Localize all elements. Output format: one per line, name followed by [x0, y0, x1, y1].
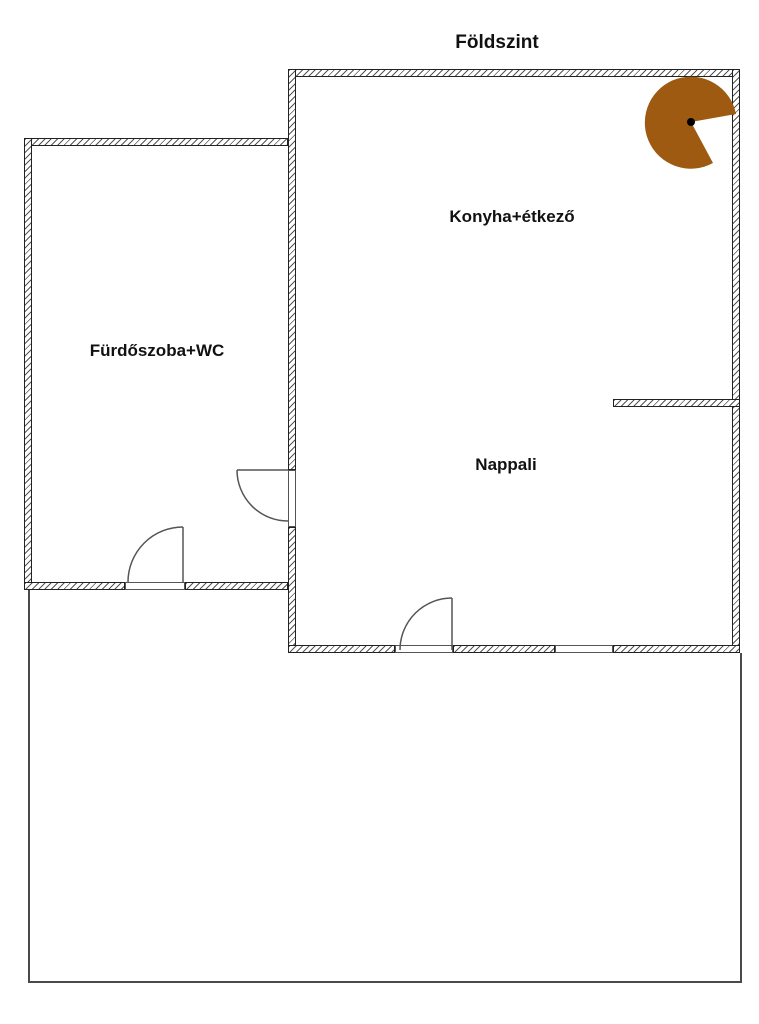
- door-bathroom-living: [237, 470, 288, 521]
- spiral-staircase-center-dot: [687, 118, 695, 126]
- wall-kitchen-top: [288, 69, 740, 77]
- wall-living-bottom-left: [288, 645, 395, 653]
- wall-kitchen-right: [732, 69, 740, 653]
- terrace-outline-bottom: [28, 981, 742, 983]
- door-opening-living-terrace: [395, 645, 453, 653]
- wall-kitchen-left-lower: [288, 527, 296, 653]
- wall-living-bottom-middle: [453, 645, 555, 653]
- wall-bathroom-bottom-left: [24, 582, 125, 590]
- terrace-outline-right: [740, 653, 742, 983]
- wall-bathroom-bottom-right: [185, 582, 288, 590]
- room-label-living: Nappali: [475, 455, 536, 475]
- window-living: [555, 645, 613, 653]
- floor-title: Földszint: [455, 32, 538, 54]
- door-opening-bathroom-living: [288, 470, 296, 527]
- wall-partition-kitchen-living: [613, 399, 740, 407]
- wall-kitchen-left-upper: [288, 69, 296, 470]
- room-label-kitchen: Konyha+étkező: [449, 207, 574, 227]
- door-bathroom-terrace: [128, 527, 183, 582]
- wall-living-bottom-right: [613, 645, 740, 653]
- door-opening-bathroom-terrace: [125, 582, 185, 590]
- spiral-staircase-body: [645, 77, 736, 169]
- terrace-outline-left: [28, 590, 30, 983]
- symbols-overlay: [0, 0, 759, 1024]
- door-living-terrace: [400, 598, 452, 650]
- spiral-staircase: [645, 77, 736, 169]
- wall-bathroom-top: [24, 138, 288, 146]
- room-label-bathroom: Fürdőszoba+WC: [90, 341, 225, 361]
- floor-plan: Földszint: [0, 0, 759, 1024]
- wall-bathroom-left: [24, 138, 32, 590]
